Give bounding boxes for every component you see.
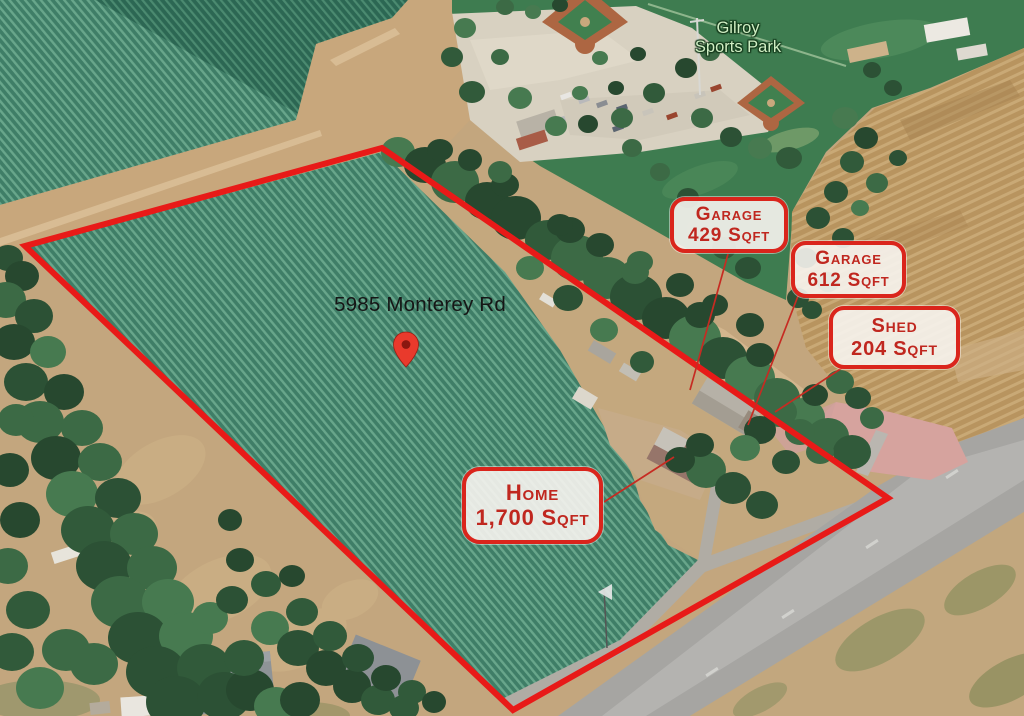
- callout-area: 612 Sqft: [807, 270, 889, 291]
- aerial-property-photo: Gilroy Sports Park 5985 Monterey Rd Gara…: [0, 0, 1024, 716]
- callout-garage-429: Garage 429 Sqft: [670, 197, 788, 253]
- park-name-line2: Sports Park: [650, 38, 826, 57]
- callout-area: 1,700 Sqft: [476, 506, 590, 531]
- callout-area: 429 Sqft: [688, 225, 770, 246]
- callout-home-1700: Home 1,700 Sqft: [462, 467, 603, 544]
- callout-title: Garage: [815, 248, 882, 269]
- park-name-label: Gilroy Sports Park: [650, 19, 826, 57]
- park-name-line1: Gilroy: [650, 19, 826, 38]
- callout-title: Home: [506, 481, 559, 506]
- callout-title: Shed: [871, 315, 917, 337]
- callout-area: 204 Sqft: [851, 338, 938, 360]
- callout-title: Garage: [696, 204, 763, 225]
- callout-garage-612: Garage 612 Sqft: [791, 241, 906, 298]
- callout-shed-204: Shed 204 Sqft: [829, 306, 960, 369]
- address-label: 5985 Monterey Rd: [320, 293, 520, 317]
